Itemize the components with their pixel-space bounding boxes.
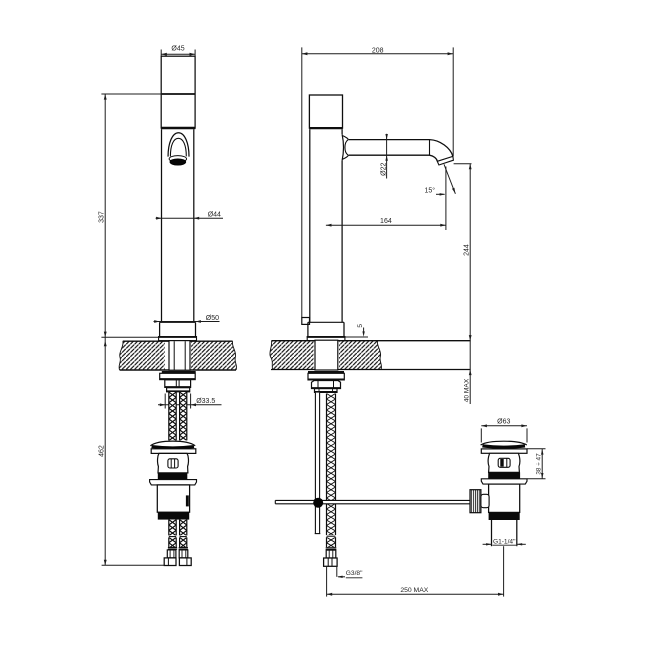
svg-text:Ø33.5: Ø33.5 bbox=[196, 398, 215, 405]
svg-text:Ø50: Ø50 bbox=[206, 315, 219, 322]
svg-text:15°: 15° bbox=[425, 186, 436, 194]
svg-text:164: 164 bbox=[380, 218, 392, 225]
svg-text:Ø63: Ø63 bbox=[497, 418, 510, 425]
svg-text:Ø22: Ø22 bbox=[380, 162, 387, 175]
svg-text:Ø45: Ø45 bbox=[171, 46, 184, 53]
svg-text:Ø44: Ø44 bbox=[208, 212, 221, 219]
svg-text:G3/8": G3/8" bbox=[346, 570, 363, 577]
svg-text:38 ÷ 47: 38 ÷ 47 bbox=[536, 453, 543, 475]
svg-text:244: 244 bbox=[464, 244, 471, 256]
svg-text:250 MAX: 250 MAX bbox=[400, 587, 428, 594]
svg-text:G1-1/4": G1-1/4" bbox=[493, 538, 516, 545]
svg-text:5: 5 bbox=[357, 324, 364, 328]
svg-text:40 MAX: 40 MAX bbox=[464, 378, 471, 402]
svg-text:337: 337 bbox=[99, 211, 106, 223]
svg-text:462: 462 bbox=[99, 445, 106, 457]
svg-text:208: 208 bbox=[372, 47, 384, 54]
